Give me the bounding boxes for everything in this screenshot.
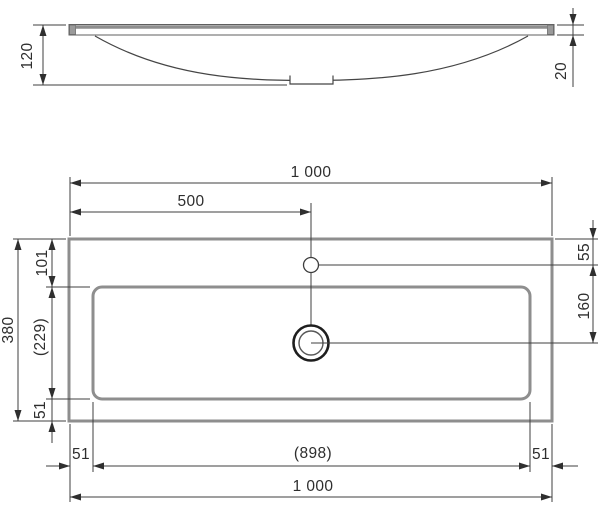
dim-edge-to-faucet: 55	[576, 220, 597, 265]
dim-label-898: (898)	[294, 445, 332, 462]
slab-left-endcap	[70, 25, 76, 35]
dim-left-rim: 51	[46, 446, 90, 470]
technical-drawing-page: 120 20 1 000	[0, 0, 600, 505]
dim-label-160: 160	[576, 292, 593, 319]
washbasin-technical-drawing: 120 20 1 000	[0, 0, 600, 505]
dim-label-500: 500	[177, 193, 204, 210]
dim-bowl-depth: (229)	[32, 287, 56, 399]
dim-faucet-from-left: 500	[70, 193, 311, 216]
dim-label-1000-top: 1 000	[291, 164, 332, 181]
dim-label-55: 55	[576, 243, 593, 261]
dim-label-51-left-vertical: 51	[32, 401, 49, 419]
plan-view: 1 000 500 380 101	[0, 164, 598, 502]
dim-bowl-width: (898)	[93, 445, 530, 470]
dim-label-380: 380	[0, 316, 17, 343]
dim-label-51-bottom-right: 51	[532, 446, 550, 463]
dim-label-101: 101	[34, 249, 51, 276]
dim-label-51-bottom-left: 51	[72, 446, 90, 463]
bowl-curve	[95, 36, 528, 81]
dim-overall-width-bottom: 1 000	[70, 478, 552, 501]
dim-rim-thickness: 20	[553, 8, 584, 87]
dim-label-1000-bottom: 1 000	[293, 478, 334, 495]
slab-right-endcap	[548, 25, 554, 35]
dim-faucet-to-drain: 160	[576, 265, 597, 343]
dim-label-120: 120	[19, 42, 36, 69]
dim-overall-depth: 380	[0, 239, 22, 421]
dim-label-20: 20	[553, 62, 570, 80]
faucet-hole	[304, 258, 319, 273]
dim-rim-to-bowl: 101	[34, 239, 56, 287]
drain-front-mask	[290, 76, 333, 85]
dim-right-rim: 51	[532, 446, 578, 470]
front-view: 120 20	[19, 8, 584, 87]
dim-label-229: (229)	[32, 318, 49, 356]
